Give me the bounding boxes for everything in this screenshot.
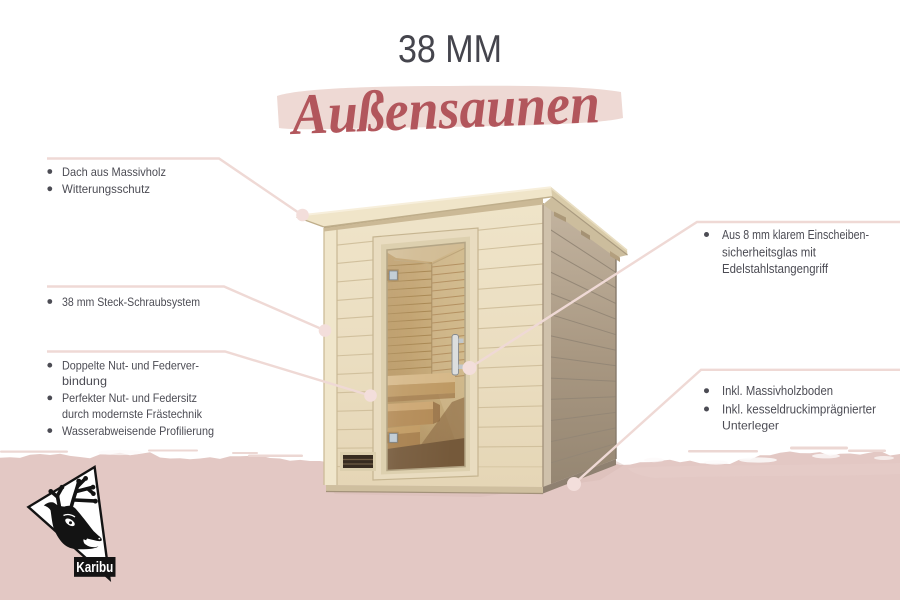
svg-text:bindung: bindung xyxy=(62,374,107,388)
svg-text:38 MM: 38 MM xyxy=(398,28,502,71)
svg-text:Witterungsschutz: Witterungsschutz xyxy=(62,182,150,196)
svg-text:Dach aus Massivholz: Dach aus Massivholz xyxy=(62,165,166,179)
svg-text:durch modernste Frästechnik: durch modernste Frästechnik xyxy=(62,407,203,421)
svg-text:Aus 8 mm klarem Einscheiben-: Aus 8 mm klarem Einscheiben- xyxy=(722,228,869,242)
svg-text:Inkl. kesseldruckimprägnierter: Inkl. kesseldruckimprägnierter xyxy=(722,402,876,416)
svg-text:Außensaunen: Außensaunen xyxy=(288,70,601,147)
svg-text:Karibu: Karibu xyxy=(76,560,113,576)
svg-text:sicherheitsglas mit: sicherheitsglas mit xyxy=(722,246,816,260)
svg-text:Inkl. Massivholzboden: Inkl. Massivholzboden xyxy=(722,384,833,398)
svg-text:Wasserabweisende Profilierung: Wasserabweisende Profilierung xyxy=(62,424,214,438)
svg-text:Edelstahlstangengriff: Edelstahlstangengriff xyxy=(722,262,828,276)
svg-text:Doppelte Nut- und Federver-: Doppelte Nut- und Federver- xyxy=(62,359,199,373)
svg-text:Unterleger: Unterleger xyxy=(722,419,779,433)
svg-text:Perfekter Nut- und Federsitz: Perfekter Nut- und Federsitz xyxy=(62,391,197,405)
svg-text:38 mm Steck-Schraubsystem: 38 mm Steck-Schraubsystem xyxy=(62,295,200,309)
